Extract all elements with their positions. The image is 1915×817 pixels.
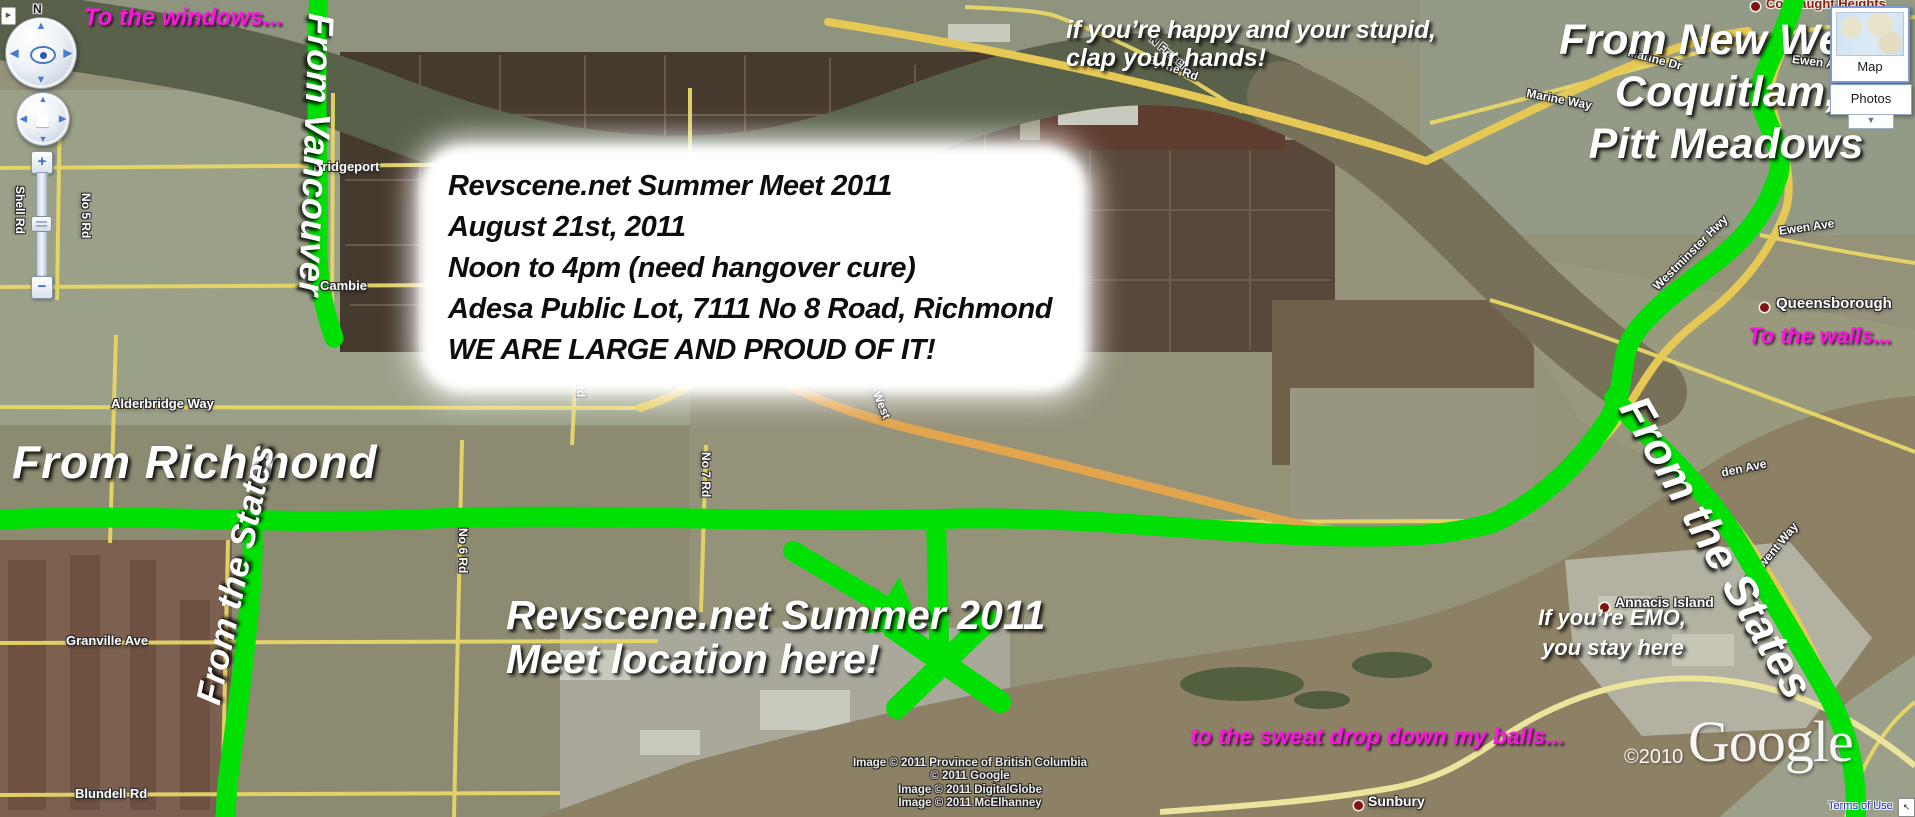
map-label-shell-rd: Shell Rd (13, 186, 27, 234)
map-label-no7-rd: No 7 Rd (699, 452, 713, 497)
event-info-box: Revscene.net Summer Meet 2011 August 21s… (428, 154, 1078, 383)
info-line-address: Adesa Public Lot, 7111 No 8 Road, Richmo… (448, 289, 1052, 330)
resize-corner-icon[interactable]: ↖ (1898, 798, 1915, 817)
place-dot-queensborough (1760, 303, 1769, 312)
look-around-wheel[interactable]: ▲ ▼ ◀ ▶ (5, 17, 77, 89)
map-type-button-map[interactable]: Map (1830, 6, 1910, 83)
look-down-arrow-icon[interactable]: ▼ (36, 74, 47, 86)
map-type-thumbnail (1836, 12, 1904, 56)
pan-right-arrow-icon[interactable]: ▶ (59, 114, 66, 125)
imagery-attribution: Image © 2011 Province of British Columbi… (730, 757, 1210, 811)
map-label-alderbridge-way: Alderbridge Way (111, 396, 214, 411)
terms-of-use-link[interactable]: Terms of Use (1828, 800, 1893, 812)
collapse-panel-button[interactable]: ▶ (1, 7, 16, 25)
pan-up-arrow-icon[interactable]: ▲ (39, 94, 48, 104)
photos-dropdown-arrow-icon[interactable]: ▼ (1848, 114, 1894, 129)
annotation-to-the-walls: To the walls... (1748, 324, 1891, 348)
map-label-granville-ave: Granville Ave (66, 633, 148, 648)
map-label-sunbury: Sunbury (1368, 793, 1425, 809)
attribution-line: Image © 2011 McElhanney (730, 797, 1210, 810)
street-view-eye-icon[interactable] (30, 46, 56, 64)
attribution-line: Image © 2011 DigitalGlobe (730, 784, 1210, 797)
copyright-year: ©2010 (1624, 746, 1683, 769)
annotation-from-vancouver: From Vancouver (291, 13, 340, 297)
annotation-happy-line1: if you’re happy and your stupid, (1066, 17, 1436, 44)
annotation-from-richmond: From Richmond (12, 438, 378, 488)
info-line-time: Noon to 4pm (need hangover cure) (448, 248, 1052, 289)
map-label-queensborough: Queensborough (1776, 295, 1892, 312)
place-dot-sunbury (1354, 801, 1363, 810)
annotation-emo-line2: you stay here (1542, 636, 1684, 660)
google-maps-window: Westminster Hwy Connaught Heights Derwen… (0, 0, 1915, 817)
annotation-meet-line1: Revscene.net Summer 2011 (506, 593, 1045, 637)
zoom-out-button[interactable]: − (31, 276, 53, 299)
look-left-arrow-icon[interactable]: ◀ (10, 47, 18, 60)
zoom-in-button[interactable]: + (31, 151, 53, 174)
annotation-to-the-windows: To the windows... (84, 5, 283, 31)
attribution-line: Image © 2011 Province of British Columbi… (730, 757, 1210, 770)
pan-hand-icon[interactable] (36, 115, 49, 127)
annotation-happy-line2: clap your hands! (1066, 45, 1266, 72)
compass-north-label: N (33, 2, 42, 16)
attribution-line: © 2011 Google (730, 770, 1210, 783)
info-line-slogan: WE ARE LARGE AND PROUD OF IT! (448, 330, 1052, 371)
look-up-arrow-icon[interactable]: ▲ (36, 20, 47, 32)
pan-left-arrow-icon[interactable]: ◀ (20, 114, 27, 125)
pan-wheel[interactable]: ▲ ▼ ◀ ▶ (16, 92, 70, 146)
zoom-slider-handle[interactable] (31, 216, 52, 232)
pan-down-arrow-icon[interactable]: ▼ (39, 134, 48, 144)
map-type-button-photos[interactable]: Photos (1830, 84, 1912, 115)
look-right-arrow-icon[interactable]: ▶ (64, 47, 72, 60)
annotation-emo-line1: If you’re EMO, (1538, 606, 1686, 630)
info-line-date: August 21st, 2011 (448, 207, 1052, 248)
ui-overlay: Bridgeport Cambie Shell Rd No 5 Rd Alder… (0, 0, 1915, 817)
annotation-sweat: to the sweat drop down my balls... (1190, 724, 1564, 749)
annotation-meet-line2: Meet location here! (506, 637, 880, 681)
map-type-label: Map (1832, 58, 1908, 75)
map-label-blundell-rd: Blundell Rd (75, 786, 147, 801)
info-line-title: Revscene.net Summer Meet 2011 (448, 166, 1052, 207)
google-watermark: Google (1688, 708, 1853, 775)
map-label-no5-rd: No 5 Rd (79, 193, 93, 238)
map-label-no6-rd: No 6 Rd (456, 528, 470, 573)
